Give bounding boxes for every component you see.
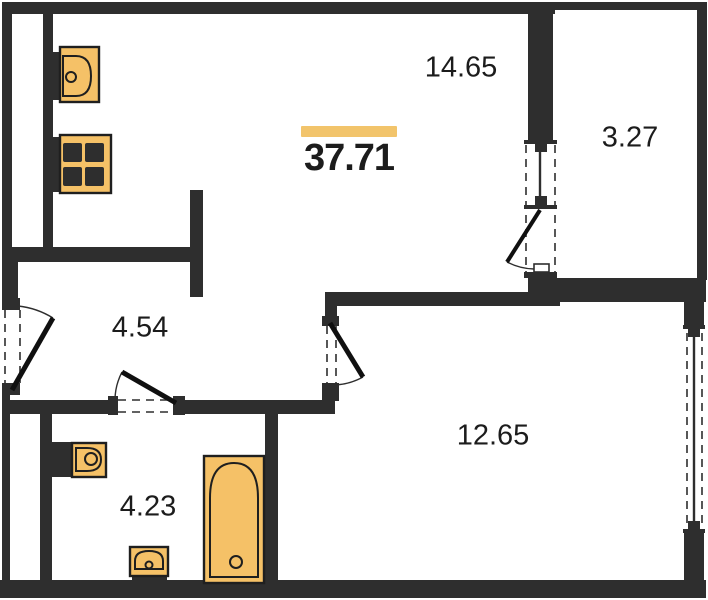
bathtub-icon xyxy=(204,456,264,583)
wall-shaft-top-inner xyxy=(43,14,53,247)
bedroom-window xyxy=(683,325,705,533)
bedroom-door-leaf xyxy=(330,323,363,377)
bedroom-door-jamb-bottom xyxy=(322,383,339,401)
toilet-icon xyxy=(50,442,106,477)
total-area-highlight-bar xyxy=(301,126,397,137)
wall-kitchen-partition-h xyxy=(2,247,203,262)
wall-bedroom-left-upper xyxy=(325,292,337,319)
wall-left-upper xyxy=(2,2,12,247)
bedroom-door xyxy=(327,323,363,385)
wall-bedroom-top xyxy=(325,292,560,306)
window-handle xyxy=(535,196,547,205)
wall-bath-top-right xyxy=(185,400,335,414)
window-frame-notch xyxy=(535,144,547,152)
wall-top-main xyxy=(2,2,555,14)
bath-door-jamb-right xyxy=(173,396,185,415)
total-area-value: 37.71 xyxy=(297,139,401,179)
floorplan-drawing xyxy=(0,0,708,600)
balcony-door-threshold xyxy=(534,264,549,272)
balcony-door-window xyxy=(507,140,557,278)
wall-right-above-window xyxy=(684,300,704,325)
balcony-door-leaf xyxy=(507,210,540,262)
wall-right-balcony xyxy=(697,2,707,280)
washbasin-icon xyxy=(130,547,168,583)
room-area-label-living-kitchen: 14.65 xyxy=(425,52,498,85)
wall-bath-right xyxy=(265,414,278,580)
floorplan: 14.65 3.27 4.54 12.65 4.23 37.71 xyxy=(0,0,708,600)
entry-door-jamb-top xyxy=(2,298,20,310)
wall-bath-top-left xyxy=(2,400,108,414)
wall-balcony-pier xyxy=(528,14,553,140)
walls xyxy=(0,2,707,598)
room-area-label-hallway: 4.54 xyxy=(112,312,168,345)
bathroom-door-leaf xyxy=(122,372,176,403)
kitchen-sink-icon xyxy=(52,47,99,102)
total-area: 37.71 xyxy=(297,126,401,179)
wall-bottom xyxy=(0,580,706,598)
bathroom-door xyxy=(115,372,176,412)
entry-door xyxy=(5,306,53,390)
window-handle xyxy=(688,329,700,337)
room-area-label-bedroom: 12.65 xyxy=(457,420,530,453)
wall-shaft-bottom-inner xyxy=(40,412,52,580)
wall-balcony-bottom xyxy=(528,278,706,302)
wall-left-lower xyxy=(2,395,10,585)
wall-top-balcony xyxy=(555,2,706,10)
stove-icon xyxy=(53,135,111,193)
room-area-label-bathroom: 4.23 xyxy=(120,491,176,524)
window-handle xyxy=(688,521,700,529)
bath-door-jamb-left xyxy=(108,396,118,415)
entry-door-leaf xyxy=(12,318,53,390)
room-area-label-balcony: 3.27 xyxy=(602,122,658,155)
wall-kitchen-partition-v xyxy=(190,190,203,297)
